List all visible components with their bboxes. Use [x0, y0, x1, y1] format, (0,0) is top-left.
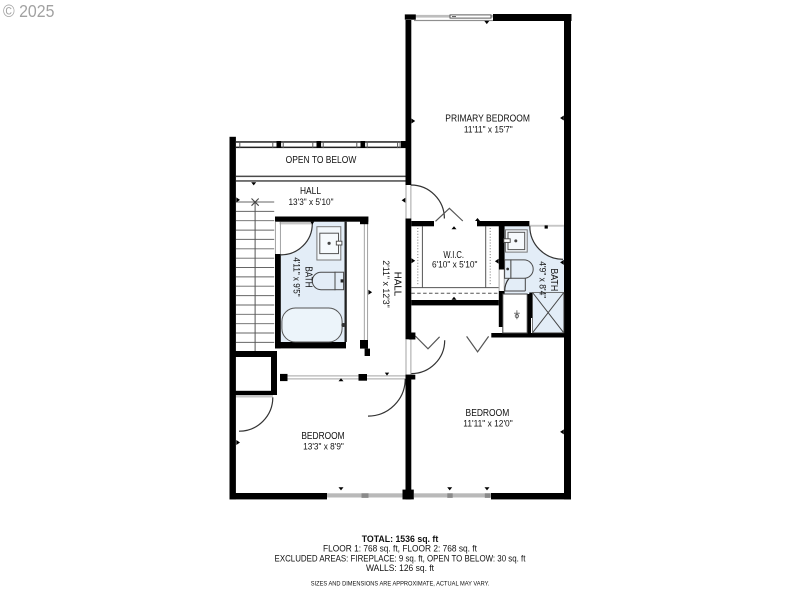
svg-text:6'10" x 5'10": 6'10" x 5'10": [432, 260, 478, 271]
svg-text:13'3" x 8'9": 13'3" x 8'9": [303, 441, 344, 452]
svg-text:BATH: BATH: [302, 266, 313, 287]
svg-text:HALL: HALL: [300, 186, 321, 197]
svg-text:4'9" x 8'4": 4'9" x 8'4": [537, 261, 548, 298]
svg-text:HALL: HALL: [392, 272, 403, 297]
svg-text:PRIMARY BEDROOM: PRIMARY BEDROOM: [445, 114, 530, 125]
svg-text:WALLS: 126 sq. ft: WALLS: 126 sq. ft: [366, 563, 434, 573]
svg-text:2'11" x 12'3": 2'11" x 12'3": [380, 260, 391, 308]
svg-text:11'11" x 12'0": 11'11" x 12'0": [463, 418, 512, 429]
svg-text:TOTAL: 1536 sq. ft: TOTAL: 1536 sq. ft: [362, 534, 439, 544]
svg-text:11'11" x 15'7": 11'11" x 15'7": [464, 125, 513, 136]
svg-text:13'3" x 5'10": 13'3" x 5'10": [289, 197, 334, 208]
svg-text:BEDROOM: BEDROOM: [466, 408, 510, 419]
svg-text:4'11" x 9'5": 4'11" x 9'5": [290, 257, 301, 296]
svg-text:FLOOR 1: 768 sq. ft, FLOOR 2:: FLOOR 1: 768 sq. ft, FLOOR 2: 768 sq. ft: [323, 544, 477, 554]
svg-text:SIZES AND DIMENSIONS ARE APPRO: SIZES AND DIMENSIONS ARE APPROXIMATE, AC…: [311, 580, 490, 587]
svg-text:© 2025: © 2025: [3, 1, 54, 21]
svg-text:EXCLUDED AREAS: FIREPLACE: 9 s: EXCLUDED AREAS: FIREPLACE: 9 sq. ft, OPE…: [275, 553, 526, 563]
svg-text:BATH: BATH: [548, 268, 559, 291]
svg-text:OPEN TO BELOW: OPEN TO BELOW: [286, 155, 357, 166]
